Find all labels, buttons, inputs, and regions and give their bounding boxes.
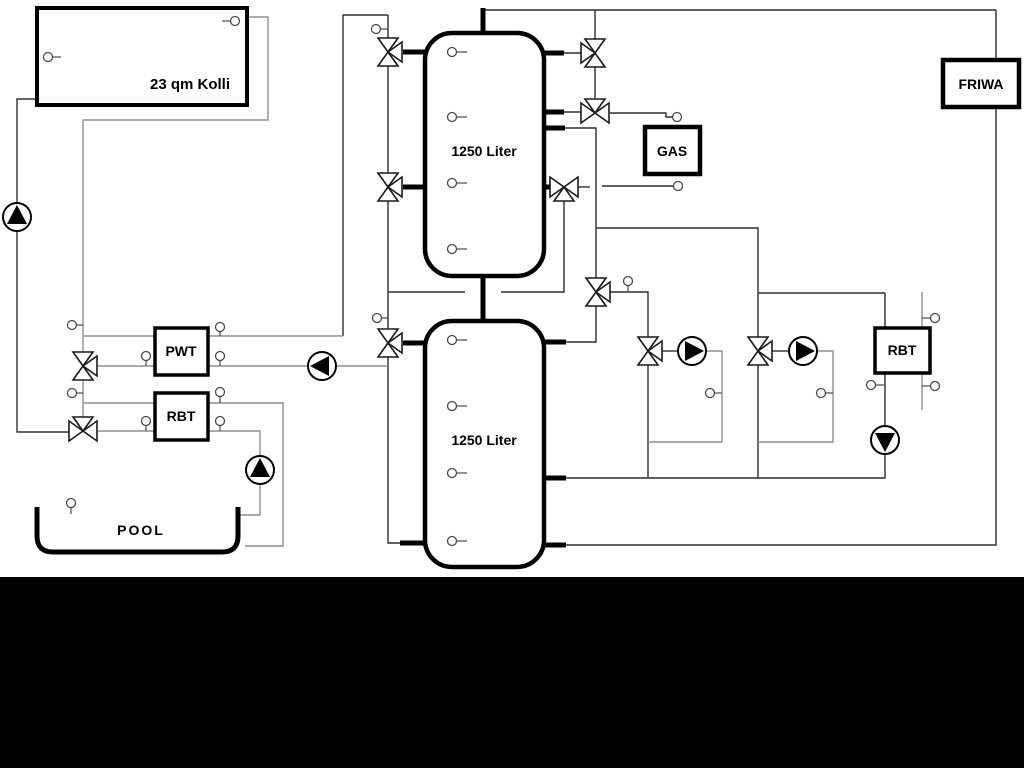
rbt-right-module: RBT xyxy=(875,328,930,373)
pool-label: POOL xyxy=(117,522,165,538)
sensor-icon xyxy=(448,402,457,411)
sensor-icon xyxy=(867,381,876,390)
sensor-icon xyxy=(44,53,53,62)
solar-collector: 23 qm Kolli xyxy=(37,8,247,105)
footer-bar xyxy=(0,577,1024,768)
sensor-icon xyxy=(448,48,457,57)
buffer-tank-top: 1250 Liter xyxy=(425,33,544,276)
port-icon xyxy=(674,182,683,191)
sensor-icon xyxy=(448,245,457,254)
sensor-icon xyxy=(216,417,225,426)
pwt-heat-exchanger: PWT xyxy=(155,328,208,375)
rbt-right-label: RBT xyxy=(888,342,917,358)
buffer-tank-top-label: 1250 Liter xyxy=(451,143,517,159)
sensor-icon xyxy=(372,25,381,34)
sensor-icon xyxy=(216,352,225,361)
sensor-icon xyxy=(216,323,225,332)
solar-collector-label: 23 qm Kolli xyxy=(150,76,230,93)
sensor-icon xyxy=(68,321,77,330)
schematic-canvas: 23 qm Kolli 1250 Liter 1250 Liter GAS FR… xyxy=(0,0,1024,768)
pwt-label: PWT xyxy=(165,343,197,359)
sensor-icon xyxy=(624,277,633,286)
sensor-icon xyxy=(68,389,77,398)
gas-boiler-label: GAS xyxy=(657,143,687,159)
sensor-icon xyxy=(448,537,457,546)
rbt-pump-icon xyxy=(871,426,899,454)
sensor-icon xyxy=(448,469,457,478)
sensor-icon xyxy=(448,179,457,188)
sensor-icon xyxy=(817,389,826,398)
friwa-station: FRIWA xyxy=(943,60,1019,107)
port-icon xyxy=(673,113,682,122)
pool-pump-icon xyxy=(246,456,274,484)
solar-pump-icon xyxy=(3,203,31,231)
circuit2-pump-icon xyxy=(789,337,817,365)
sensor-icon xyxy=(216,388,225,397)
rbt-left-label: RBT xyxy=(167,408,196,424)
buffer-tank-bottom: 1250 Liter xyxy=(425,321,544,567)
sensor-icon xyxy=(373,314,382,323)
sensor-icon xyxy=(142,352,151,361)
sensor-icon xyxy=(67,499,76,508)
buffer-tank-bottom-label: 1250 Liter xyxy=(451,432,517,448)
sensor-icon xyxy=(448,113,457,122)
pwt-pump-icon xyxy=(308,352,336,380)
sensor-icon xyxy=(448,336,457,345)
circuit1-pump-icon xyxy=(678,337,706,365)
rbt-left-module: RBT xyxy=(155,393,208,440)
sensor-icon xyxy=(142,417,151,426)
sensor-icon xyxy=(931,382,940,391)
sensor-icon xyxy=(706,389,715,398)
friwa-station-label: FRIWA xyxy=(958,76,1003,92)
sensor-icon xyxy=(931,314,940,323)
sensor-icon xyxy=(231,17,240,26)
